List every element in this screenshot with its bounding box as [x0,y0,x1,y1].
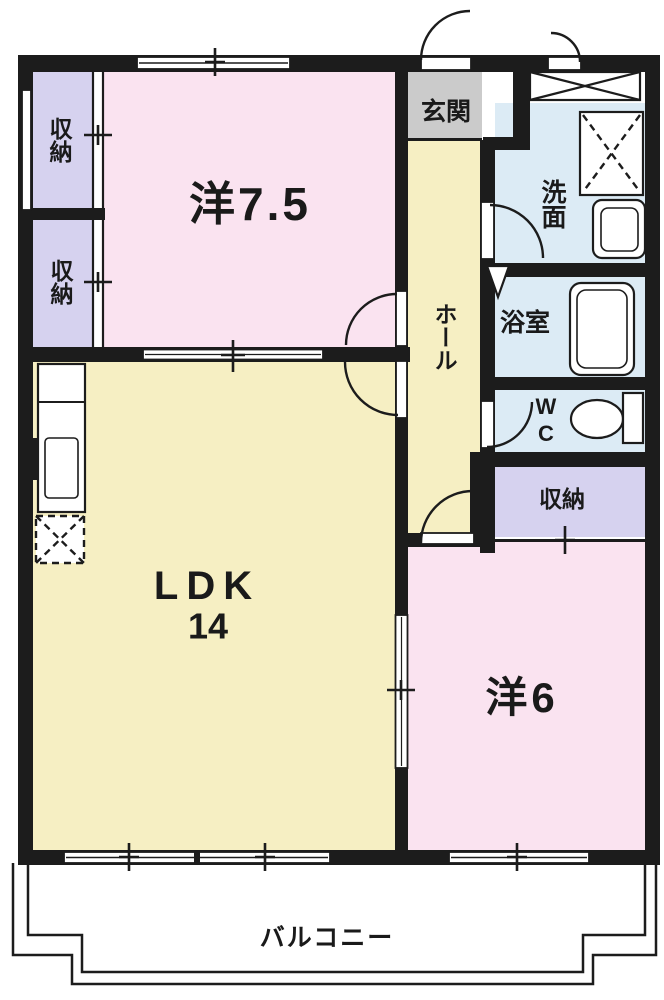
left-wall-inset [22,90,31,210]
bathtub [570,283,634,375]
label-storage-left-bottom: 収納 [47,259,71,305]
refrigerator-space [36,516,84,563]
label-bathroom: 浴室 [500,310,550,336]
label-ldk: LDK [154,566,260,608]
label-storage-left-top: 収納 [46,117,70,163]
western6-door-leaf [421,533,474,544]
label-wc: WC [534,394,557,448]
label-washroom: 洗面 [539,179,565,229]
label-balcony: バルコニー [260,925,395,951]
label-storage-right: 収納 [539,488,585,512]
wc-door-leaf [481,401,494,448]
label-entry: 玄関 [421,99,471,125]
label-ldk-size: 14 [188,607,228,644]
floor-plan: 洋7.5 収納 収納 玄関 ホール 洗面 浴室 WC 収納 LDK 14 洋6 … [0,0,664,1000]
toilet-bowl [571,400,623,438]
label-western-6: 洋6 [485,676,558,720]
toilet-tank [623,393,643,443]
ldk-door-leaf [396,361,407,418]
label-western-7-5: 洋7.5 [189,181,311,229]
entry-door-leaf [421,57,471,70]
label-hall: ホール [431,303,455,372]
meter-door-leaf [548,57,581,70]
washroom-door-leaf [481,202,494,259]
western75-door-leaf [396,291,407,346]
